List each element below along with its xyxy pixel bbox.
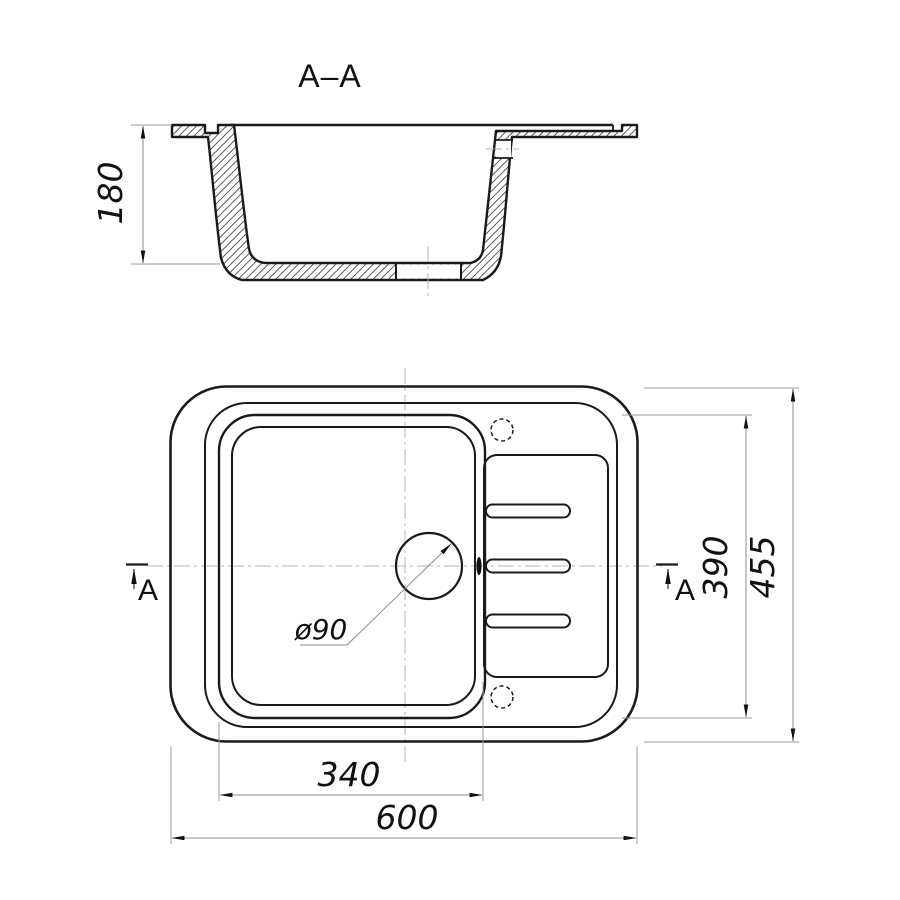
sink-rim-inner-edge (205, 403, 617, 727)
bowl-depth-label: 390 (696, 536, 735, 599)
section-drain-opening (396, 246, 461, 296)
drawing-canvas: A–A 180 (0, 0, 900, 900)
overflow-mark (476, 557, 481, 575)
section-view: A–A 180 (91, 58, 637, 296)
drainboard-rib (486, 615, 570, 628)
section-marker-letter: A (675, 574, 695, 607)
sink-technical-drawing: A–A 180 (0, 0, 900, 900)
section-marker-left: A (126, 565, 158, 608)
section-marker-letter: A (138, 574, 158, 607)
overall-depth-label: 455 (743, 536, 782, 599)
section-marker-right: A (656, 565, 695, 608)
tap-hole-top (491, 419, 513, 441)
section-title: A–A (298, 58, 361, 94)
section-overflow-hole (486, 140, 519, 158)
bowl-width-label: 340 (318, 755, 381, 794)
sink-outer-edge (171, 387, 638, 742)
section-profile (172, 125, 637, 280)
drain-diameter-label: ø90 (294, 613, 348, 646)
drainboard-rib (486, 505, 570, 518)
depth-label: 180 (91, 162, 130, 225)
overall-width-label: 600 (376, 798, 439, 837)
drain-diameter-leader: ø90 (294, 544, 451, 646)
dimension-depth-180: 180 (91, 125, 220, 264)
tap-hole-bottom (491, 686, 513, 708)
plan-view: ø90 A A 340 600 (126, 368, 799, 844)
